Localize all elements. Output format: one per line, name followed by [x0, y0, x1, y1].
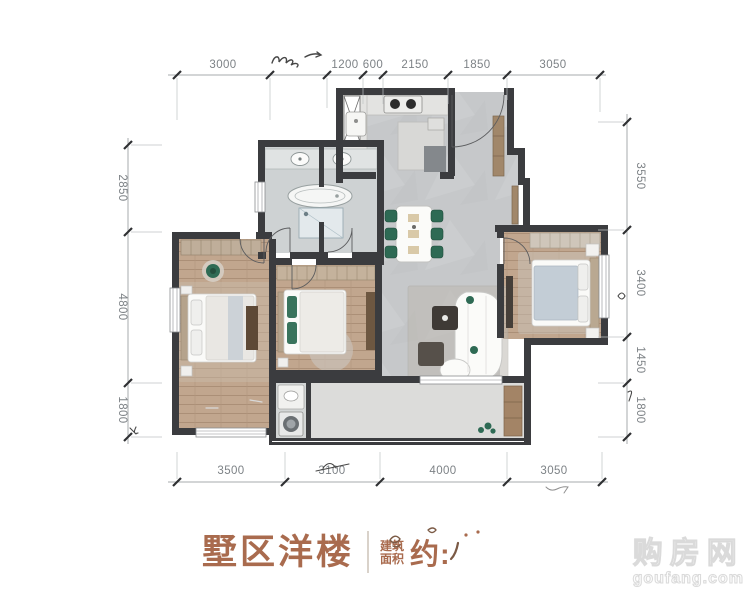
master-pillow [578, 264, 588, 290]
caption-area-prefix: 约: [410, 531, 451, 573]
nightstand [278, 358, 288, 367]
place-setting [408, 230, 419, 238]
bed2-pillow-green [287, 296, 297, 318]
dim-label-right-0: 3550 [634, 162, 646, 189]
watermark: 购房网 goufang.com [633, 538, 744, 588]
scribble-right-1800 [628, 391, 632, 401]
dim-label-bottom-0: 3500 [217, 465, 244, 477]
scribble-bottom-3050 [546, 487, 568, 493]
master-duvet [534, 266, 578, 320]
stove-burner [406, 99, 416, 109]
dim-label-top-5: 1850 [463, 59, 490, 71]
small-appliance [428, 118, 444, 130]
caption: 墅区洋楼 建筑 面积 约: [202, 531, 497, 573]
dim-label-top-2: 1200 [331, 59, 358, 71]
balcony-cabinet [504, 386, 522, 436]
scribble-top-arrow [305, 52, 321, 57]
window [255, 182, 265, 212]
washer-drum-inner [287, 420, 296, 429]
hall-console [512, 186, 518, 224]
side-table [418, 342, 444, 366]
dim-label-left-0: 2850 [116, 174, 128, 201]
coffee-table-decor [442, 315, 448, 321]
dim-label-right-1: 3400 [634, 269, 646, 296]
nightstand [181, 286, 192, 294]
caption-divider [367, 531, 369, 573]
bathtub-drain [335, 194, 339, 198]
dim-label-top-6: 3050 [539, 59, 566, 71]
window [170, 288, 180, 332]
bathtub [288, 185, 352, 208]
watermark-cn: 购房网 [633, 538, 744, 570]
dim-label-bottom-3: 3050 [540, 465, 567, 477]
dim-label-right-3: 1800 [634, 396, 646, 423]
dim-label-top-0: 3000 [209, 59, 236, 71]
master-headboard [590, 258, 599, 328]
bed1-pillow [191, 300, 202, 325]
dim-label-bottom-2: 4000 [429, 465, 456, 477]
stove-burner [390, 99, 400, 109]
scribble-right-3400 [618, 293, 625, 299]
dim-label-top-3: 600 [363, 59, 383, 71]
nightstand [586, 328, 599, 339]
table-decor [412, 225, 416, 229]
watermark-domain: goufang.com [633, 570, 744, 588]
window [196, 428, 266, 437]
fridge [424, 146, 446, 172]
dim-label-left-1: 4800 [116, 293, 128, 320]
utility-basin [284, 391, 298, 401]
shower-head [304, 212, 308, 216]
caption-area-value-erased [451, 532, 497, 572]
bed2-duvet [300, 292, 344, 352]
place-setting [408, 214, 419, 222]
tv-console [506, 276, 513, 328]
nightstand [586, 244, 599, 256]
bed1-bench [246, 306, 258, 350]
caption-area-label-line1: 建筑 [380, 539, 404, 553]
caption-area-label-line2: 面积 [380, 552, 404, 566]
basin-drain [298, 157, 301, 160]
plant-core [210, 268, 216, 274]
bed2-pillow-green [287, 322, 297, 344]
caption-area-label: 建筑 面积 [380, 540, 404, 566]
floor-plan-page: 3000 1200 600 2150 1850 3050 3500 3100 4… [0, 0, 750, 600]
bed2-headboard [278, 292, 284, 352]
dim-label-left-2: 1800 [116, 396, 128, 423]
bed1-throw [228, 296, 243, 360]
floor-plan-drawing: 3000 1200 600 2150 1850 3050 3500 3100 4… [0, 0, 750, 600]
caption-title: 墅区洋楼 [202, 535, 354, 570]
place-setting [408, 246, 419, 254]
kitchen-sink-drain [354, 119, 358, 123]
balcony-slider-window [420, 376, 502, 384]
bedroom2-wardrobe [366, 292, 375, 350]
bed1-pillow [191, 330, 202, 355]
dim-label-bottom-1: 3100 [318, 465, 345, 477]
plant [470, 346, 478, 354]
plant [466, 296, 474, 304]
dim-label-right-2: 1450 [634, 346, 646, 373]
window [599, 255, 609, 318]
bed1-headboard [181, 296, 188, 360]
stove [384, 96, 422, 113]
scribble-top-dim [272, 57, 298, 67]
kitchen-sink [346, 112, 366, 136]
nightstand [181, 366, 192, 376]
master-pillow [578, 296, 588, 322]
dim-label-top-4: 2150 [401, 59, 428, 71]
